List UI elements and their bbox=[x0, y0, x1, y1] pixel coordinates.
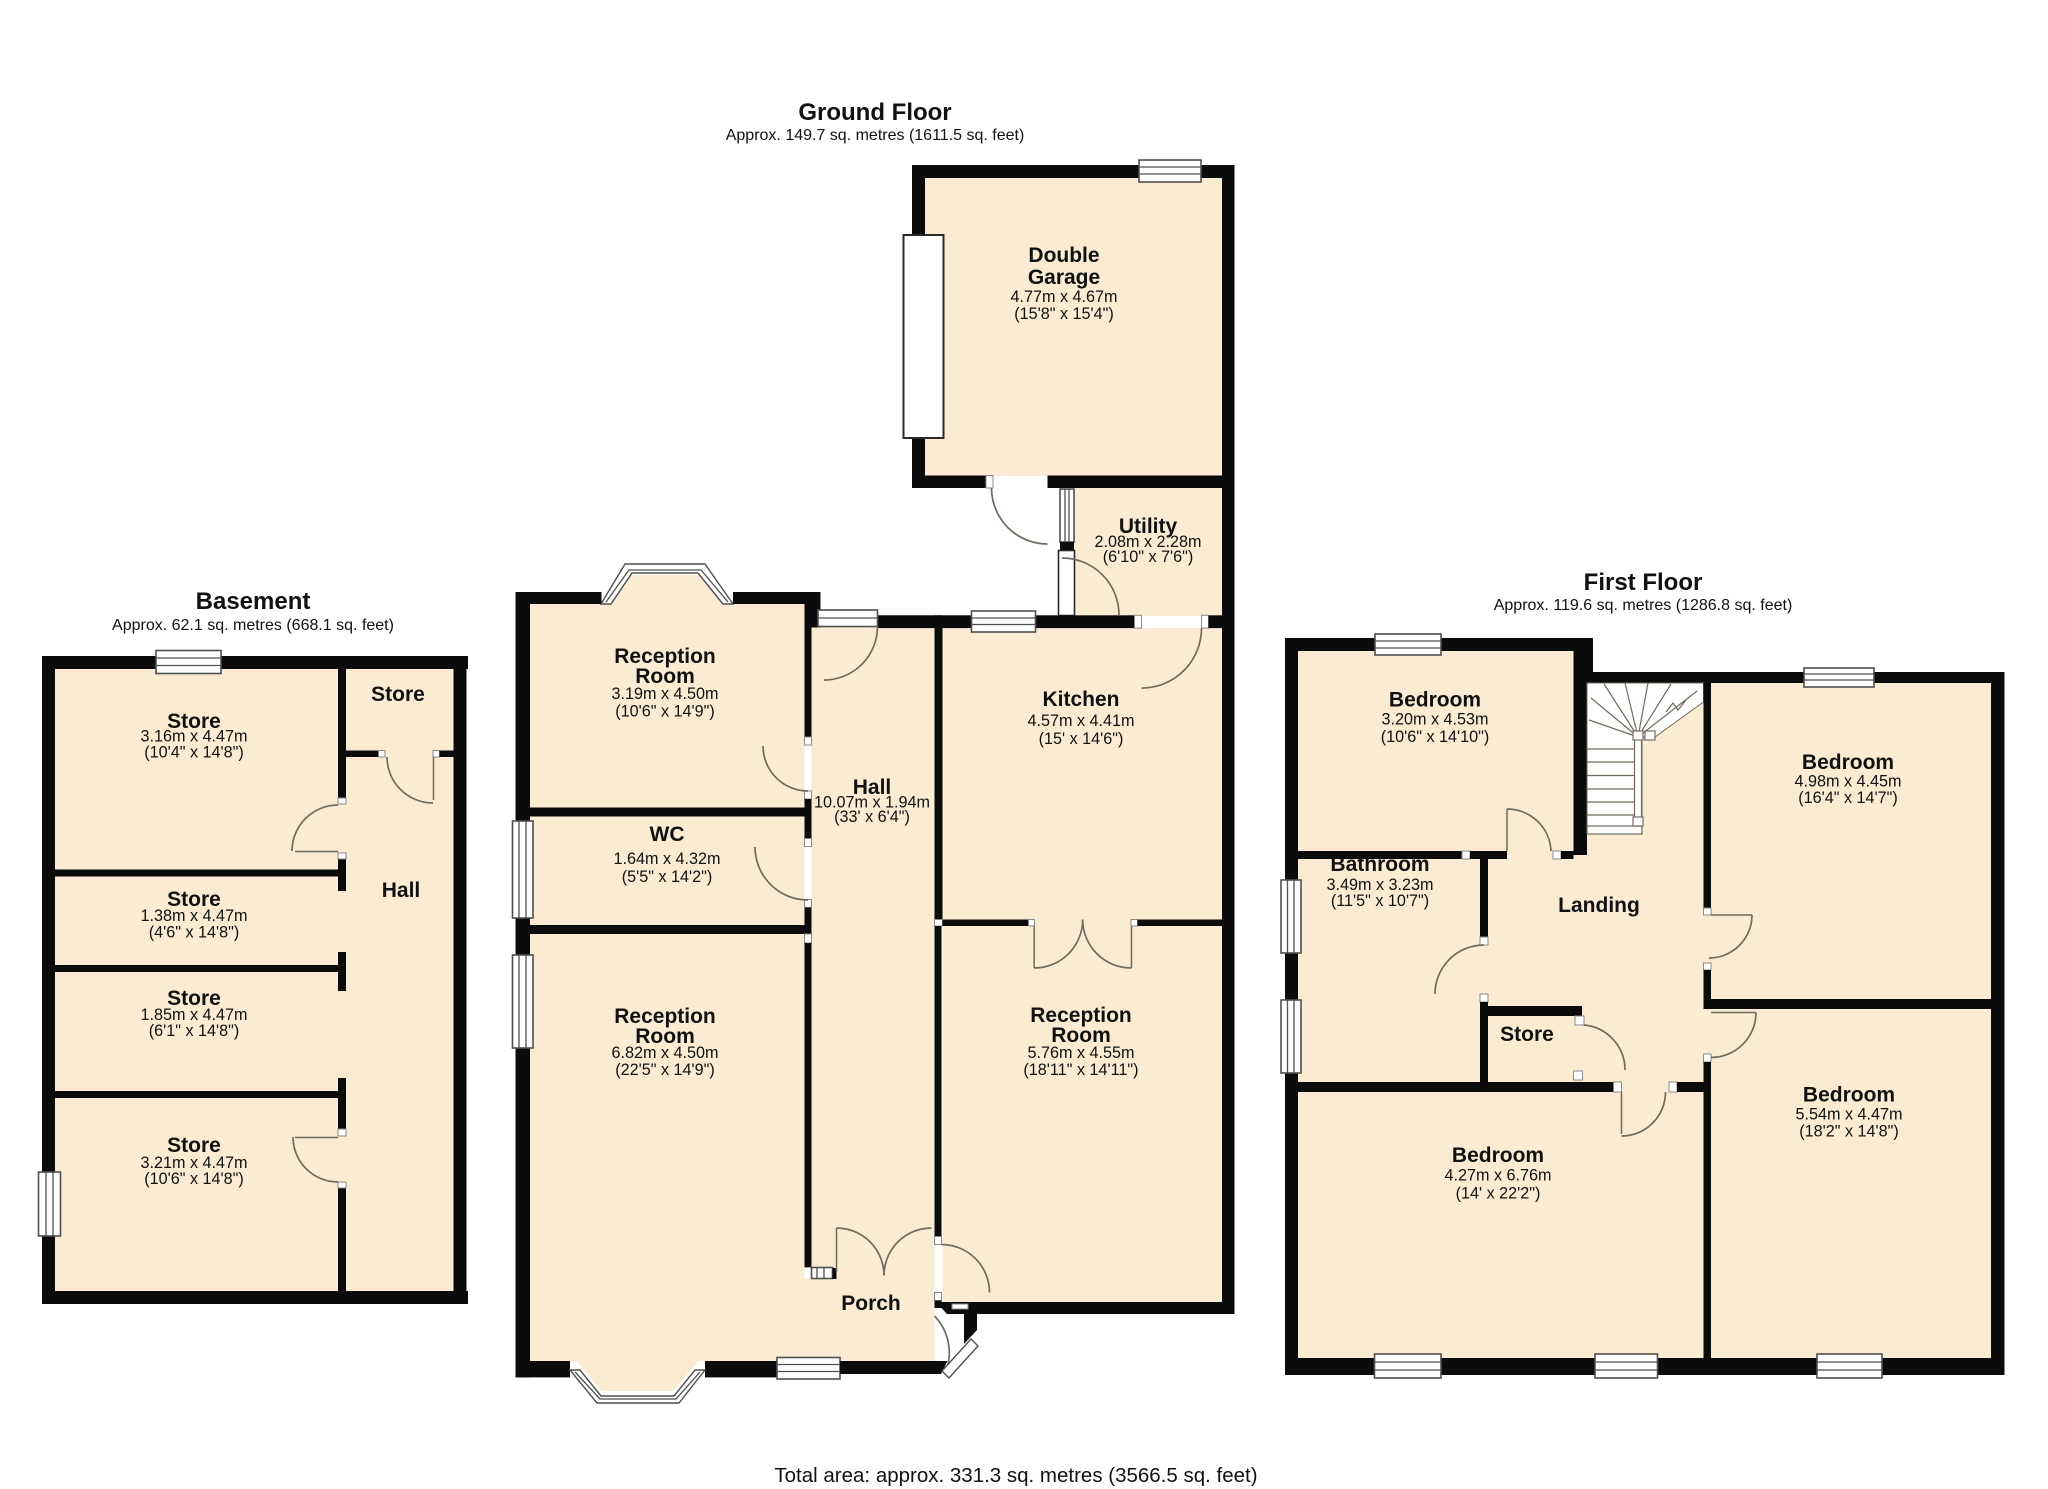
svg-text:(11'5" x 10'7"): (11'5" x 10'7") bbox=[1331, 892, 1429, 910]
svg-text:Bedroom: Bedroom bbox=[1389, 689, 1481, 712]
svg-text:(10'6" x 14'10"): (10'6" x 14'10") bbox=[1381, 728, 1490, 746]
svg-text:(15'8" x 15'4"): (15'8" x 15'4") bbox=[1014, 305, 1114, 323]
svg-text:Approx. 62.1 sq. metres (668.1: Approx. 62.1 sq. metres (668.1 sq. feet) bbox=[112, 617, 394, 634]
svg-text:3.20m x 4.53m: 3.20m x 4.53m bbox=[1381, 711, 1488, 729]
svg-text:Approx. 119.6 sq. metres (1286: Approx. 119.6 sq. metres (1286.8 sq. fee… bbox=[1494, 597, 1793, 614]
svg-text:Approx. 149.7 sq. metres (1611: Approx. 149.7 sq. metres (1611.5 sq. fee… bbox=[726, 127, 1025, 144]
svg-text:5.54m x 4.47m: 5.54m x 4.47m bbox=[1795, 1106, 1902, 1124]
svg-text:Bedroom: Bedroom bbox=[1803, 1084, 1895, 1107]
svg-text:(22'5" x 14'9"): (22'5" x 14'9") bbox=[615, 1061, 715, 1079]
svg-text:(18'2" x 14'8"): (18'2" x 14'8") bbox=[1799, 1123, 1899, 1141]
svg-text:Landing: Landing bbox=[1558, 894, 1640, 917]
svg-text:1.38m x 4.47m: 1.38m x 4.47m bbox=[140, 907, 247, 925]
svg-text:Bedroom: Bedroom bbox=[1452, 1144, 1544, 1167]
svg-text:(6'1" x 14'8"): (6'1" x 14'8") bbox=[149, 1022, 240, 1040]
svg-text:Bathroom: Bathroom bbox=[1330, 853, 1429, 876]
svg-text:3.19m x 4.50m: 3.19m x 4.50m bbox=[611, 685, 718, 703]
svg-text:Store: Store bbox=[1500, 1023, 1554, 1046]
svg-text:5.76m x 4.55m: 5.76m x 4.55m bbox=[1027, 1044, 1134, 1062]
svg-text:First Floor: First Floor bbox=[1584, 569, 1703, 596]
svg-text:(14' x 22'2"): (14' x 22'2") bbox=[1456, 1185, 1541, 1203]
svg-text:(16'4" x 14'7"): (16'4" x 14'7") bbox=[1798, 789, 1898, 807]
svg-text:(10'4" x 14'8"): (10'4" x 14'8") bbox=[144, 744, 244, 762]
svg-text:Garage: Garage bbox=[1028, 266, 1100, 289]
svg-text:(4'6" x 14'8"): (4'6" x 14'8") bbox=[149, 924, 240, 942]
svg-text:Ground Floor: Ground Floor bbox=[798, 99, 951, 126]
svg-text:WC: WC bbox=[650, 823, 685, 846]
svg-text:Store: Store bbox=[371, 683, 425, 706]
svg-text:4.77m x 4.67m: 4.77m x 4.67m bbox=[1010, 288, 1117, 306]
svg-text:(15' x 14'6"): (15' x 14'6") bbox=[1039, 730, 1124, 748]
svg-text:(6'10" x 7'6"): (6'10" x 7'6") bbox=[1103, 548, 1194, 566]
svg-text:Hall: Hall bbox=[382, 879, 421, 902]
svg-text:1.64m x 4.32m: 1.64m x 4.32m bbox=[613, 850, 720, 868]
svg-text:4.98m x 4.45m: 4.98m x 4.45m bbox=[1794, 773, 1901, 791]
svg-text:Porch: Porch bbox=[841, 1292, 901, 1315]
svg-text:(10'6" x 14'8"): (10'6" x 14'8") bbox=[144, 1170, 244, 1188]
svg-text:Bedroom: Bedroom bbox=[1802, 751, 1894, 774]
svg-text:(18'11" x 14'11"): (18'11" x 14'11") bbox=[1023, 1061, 1138, 1079]
svg-text:Kitchen: Kitchen bbox=[1042, 688, 1119, 711]
svg-text:4.27m x 6.76m: 4.27m x 6.76m bbox=[1444, 1167, 1551, 1185]
svg-text:6.82m x 4.50m: 6.82m x 4.50m bbox=[611, 1044, 718, 1062]
svg-text:(33' x 6'4"): (33' x 6'4") bbox=[834, 808, 910, 826]
svg-text:Double: Double bbox=[1028, 244, 1099, 267]
svg-text:4.57m x 4.41m: 4.57m x 4.41m bbox=[1027, 712, 1134, 730]
svg-text:Basement: Basement bbox=[196, 588, 311, 615]
svg-text:Total area: approx. 331.3 sq.: Total area: approx. 331.3 sq. metres (35… bbox=[774, 1464, 1257, 1487]
svg-text:(5'5" x 14'2"): (5'5" x 14'2") bbox=[622, 868, 713, 886]
svg-text:(10'6" x 14'9"): (10'6" x 14'9") bbox=[615, 703, 715, 721]
